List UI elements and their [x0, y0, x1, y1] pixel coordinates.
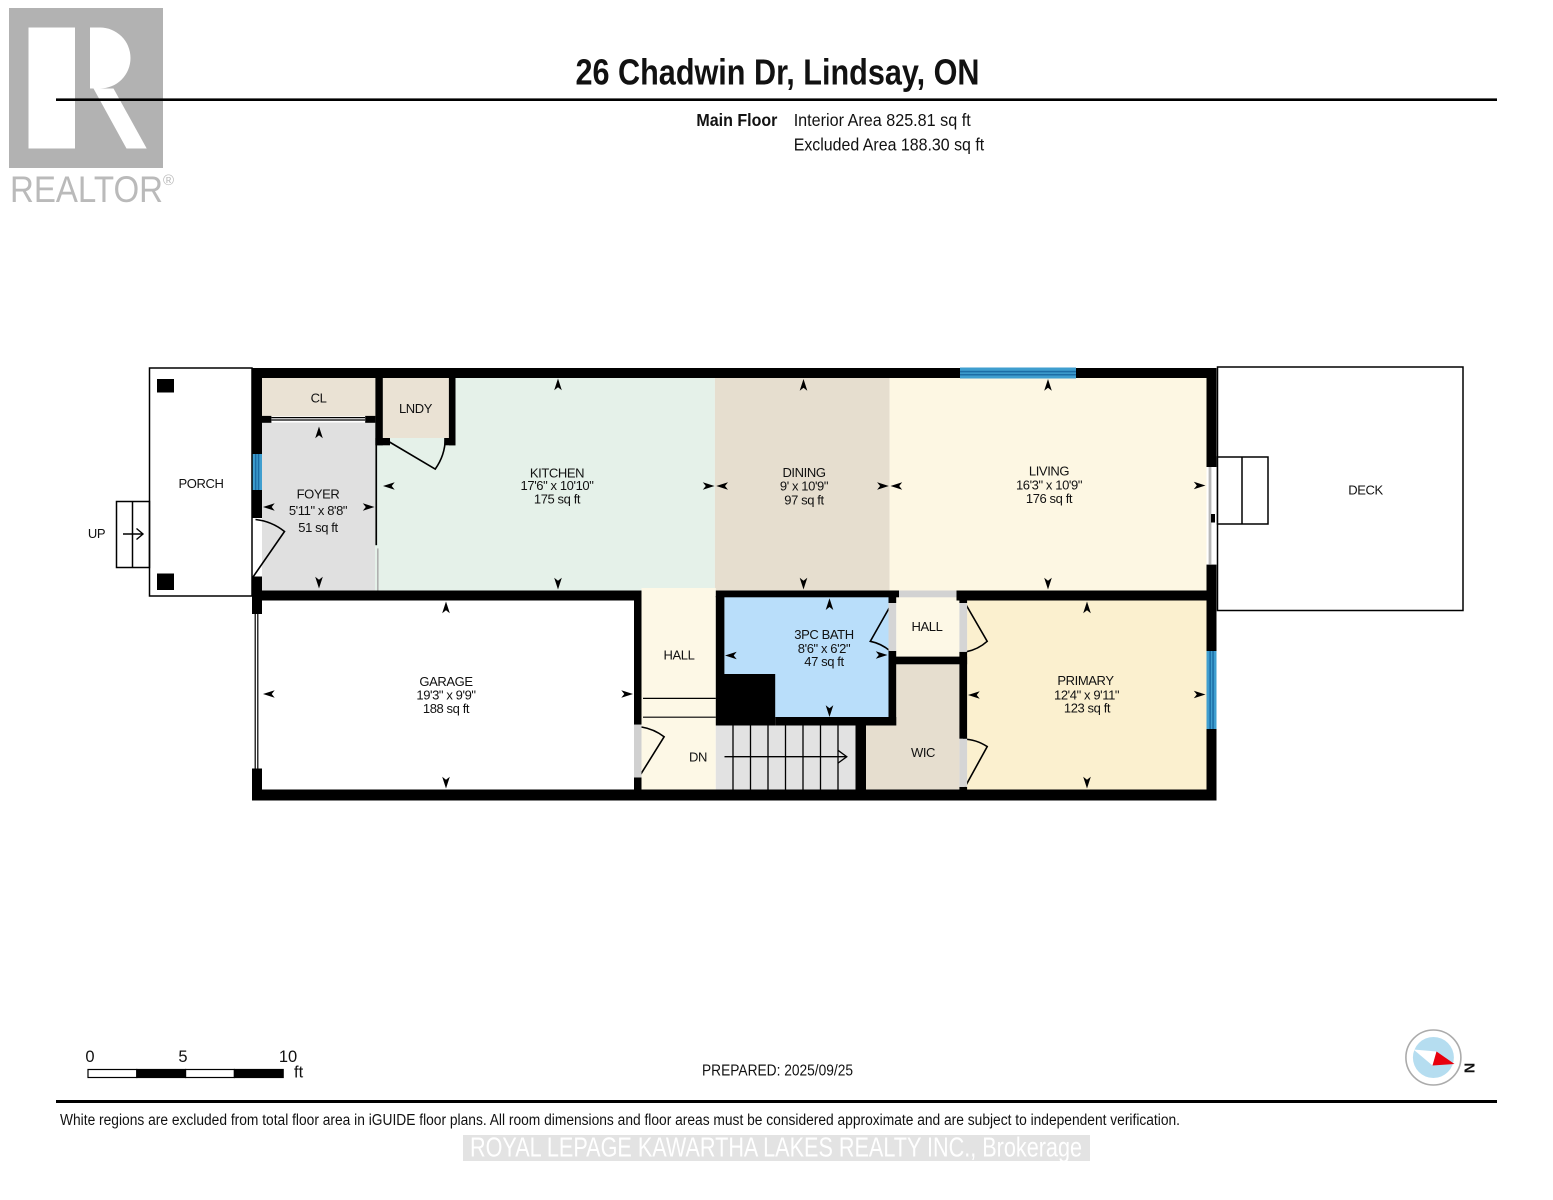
svg-text:Interior Area 825.81 sq ft: Interior Area 825.81 sq ft — [794, 110, 971, 130]
svg-text:26 Chadwin Dr, Lindsay, ON: 26 Chadwin Dr, Lindsay, ON — [576, 52, 980, 93]
svg-text:LNDY: LNDY — [399, 401, 433, 416]
svg-text:ft: ft — [294, 1064, 304, 1082]
svg-text:188 sq ft: 188 sq ft — [423, 701, 470, 716]
svg-text:9' x 10'9": 9' x 10'9" — [780, 479, 829, 494]
svg-text:175 sq ft: 175 sq ft — [534, 491, 581, 506]
svg-text:PREPARED: 2025/09/25: PREPARED: 2025/09/25 — [702, 1063, 853, 1080]
svg-text:5: 5 — [178, 1048, 187, 1066]
svg-text:WIC: WIC — [911, 745, 935, 760]
svg-text:PORCH: PORCH — [179, 476, 224, 491]
svg-text:HALL: HALL — [664, 648, 695, 663]
svg-text:Main Floor: Main Floor — [696, 110, 777, 130]
svg-text:UP: UP — [88, 526, 105, 541]
svg-text:REALTOR: REALTOR — [10, 169, 163, 210]
svg-text:ROYAL LEPAGE KAWARTHA LAKES RE: ROYAL LEPAGE KAWARTHA LAKES REALTY INC.,… — [470, 1132, 1082, 1163]
svg-text:47 sq ft: 47 sq ft — [804, 654, 844, 669]
svg-text:123 sq ft: 123 sq ft — [1064, 700, 1111, 715]
svg-text:PRIMARY: PRIMARY — [1057, 673, 1114, 688]
svg-text:White regions are excluded fro: White regions are excluded from total fl… — [60, 1112, 1180, 1129]
svg-text:LIVING: LIVING — [1029, 464, 1070, 479]
svg-text:DN: DN — [689, 749, 707, 764]
svg-text:HALL: HALL — [912, 619, 943, 634]
svg-text:CL: CL — [311, 391, 327, 406]
svg-text:19'3" x 9'9": 19'3" x 9'9" — [416, 687, 476, 702]
svg-text:0: 0 — [85, 1048, 94, 1066]
svg-text:Excluded Area 188.30 sq ft: Excluded Area 188.30 sq ft — [794, 134, 985, 154]
svg-text:3PC BATH: 3PC BATH — [794, 627, 853, 642]
svg-text:®: ® — [163, 172, 174, 189]
svg-text:FOYER: FOYER — [297, 487, 340, 502]
svg-text:DECK: DECK — [1348, 482, 1383, 497]
svg-text:176 sq ft: 176 sq ft — [1026, 491, 1073, 506]
svg-text:N: N — [1461, 1063, 1477, 1073]
svg-text:5'11" x 8'8": 5'11" x 8'8" — [289, 503, 348, 518]
svg-text:51 sq ft: 51 sq ft — [298, 520, 338, 535]
svg-text:97 sq ft: 97 sq ft — [784, 492, 824, 507]
